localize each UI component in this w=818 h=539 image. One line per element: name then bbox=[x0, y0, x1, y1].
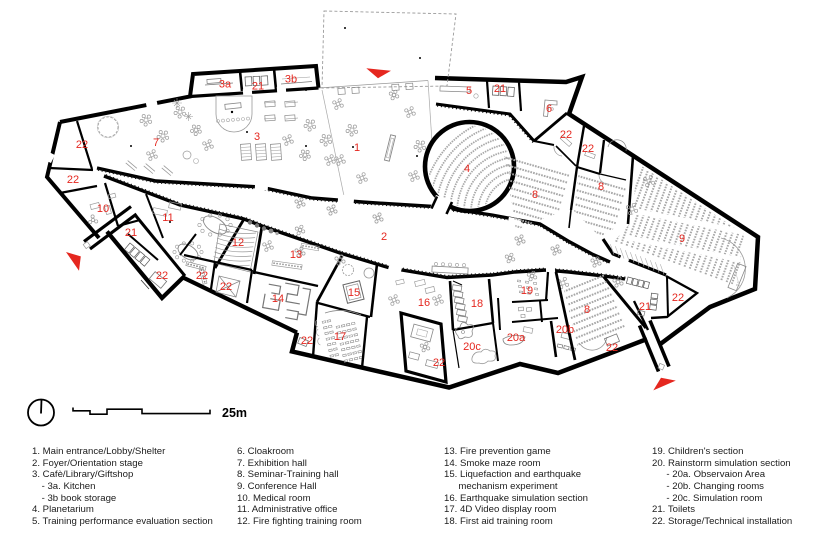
svg-text:14: 14 bbox=[272, 293, 284, 305]
svg-text:3a: 3a bbox=[219, 79, 232, 91]
svg-text:17: 17 bbox=[334, 331, 346, 343]
svg-text:22: 22 bbox=[582, 143, 594, 155]
svg-text:7: 7 bbox=[153, 137, 159, 149]
svg-text:9: 9 bbox=[679, 233, 685, 245]
svg-text:20a: 20a bbox=[507, 332, 526, 344]
svg-text:25m: 25m bbox=[222, 406, 247, 420]
svg-text:22: 22 bbox=[196, 270, 208, 282]
svg-text:11: 11 bbox=[162, 212, 173, 224]
svg-text:21: 21 bbox=[494, 83, 506, 95]
svg-text:22: 22 bbox=[672, 292, 684, 304]
svg-text:18: 18 bbox=[471, 298, 483, 310]
svg-text:22: 22 bbox=[433, 357, 445, 369]
svg-text:21: 21 bbox=[125, 227, 137, 239]
svg-text:22: 22 bbox=[606, 342, 618, 354]
svg-text:12: 12 bbox=[232, 237, 244, 249]
svg-text:20b: 20b bbox=[556, 324, 574, 336]
svg-text:20c: 20c bbox=[463, 341, 481, 353]
svg-text:2: 2 bbox=[381, 231, 387, 243]
svg-text:8: 8 bbox=[598, 181, 604, 193]
svg-text:1: 1 bbox=[354, 142, 360, 154]
svg-text:8: 8 bbox=[532, 189, 538, 201]
svg-text:21: 21 bbox=[252, 81, 264, 93]
svg-text:22: 22 bbox=[67, 174, 79, 186]
svg-text:22: 22 bbox=[76, 139, 88, 151]
svg-text:19: 19 bbox=[521, 285, 533, 297]
svg-text:6: 6 bbox=[546, 103, 552, 115]
svg-text:22: 22 bbox=[301, 335, 313, 347]
svg-text:22: 22 bbox=[220, 281, 232, 293]
svg-text:22: 22 bbox=[560, 129, 572, 141]
svg-text:5: 5 bbox=[466, 85, 472, 97]
svg-text:8: 8 bbox=[584, 304, 590, 316]
svg-text:10: 10 bbox=[97, 203, 109, 215]
svg-text:3b: 3b bbox=[285, 74, 297, 86]
svg-text:15: 15 bbox=[348, 287, 360, 299]
svg-text:16: 16 bbox=[418, 297, 430, 309]
svg-text:22: 22 bbox=[156, 270, 168, 282]
svg-text:4: 4 bbox=[464, 163, 470, 175]
svg-text:21: 21 bbox=[639, 301, 651, 313]
svg-text:13: 13 bbox=[290, 249, 302, 261]
svg-text:3: 3 bbox=[254, 131, 260, 143]
